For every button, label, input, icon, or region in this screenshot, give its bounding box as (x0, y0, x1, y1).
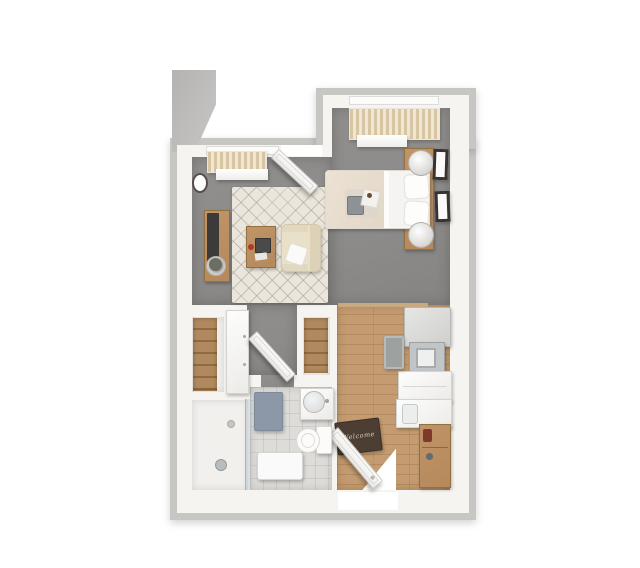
tray-snack (367, 193, 372, 198)
kitchen-mat (384, 336, 404, 369)
framed-art-bottom (434, 191, 450, 223)
console-shelf-line (422, 447, 448, 448)
shower-bench (257, 452, 303, 480)
plant-foliage (209, 258, 222, 271)
wardrobe-cabinet (226, 310, 249, 394)
toilet-bowl (296, 428, 320, 453)
laptop (255, 238, 271, 253)
entry-console-table (419, 424, 451, 488)
loveseat-arm-top (282, 225, 308, 232)
loveseat (281, 224, 321, 272)
patio-door-opening (281, 145, 322, 156)
table-lamp-south (408, 222, 434, 248)
wardrobe-handle-bottom (243, 363, 246, 366)
floorplan-3d-render: Welcome (0, 0, 640, 568)
bed-pillow-top (403, 173, 430, 200)
breakfast-tray (345, 189, 379, 218)
entry-door-opening (338, 492, 398, 510)
vanity-mirror (303, 391, 325, 413)
bathroom-vanity (300, 388, 334, 420)
vanity-faucet (325, 399, 329, 403)
tray-magazine (360, 188, 380, 208)
shower-drain (227, 420, 235, 428)
refrigerator (404, 307, 451, 347)
table-lamp-north (408, 150, 434, 176)
red-mug (248, 244, 254, 250)
kitchen-cabinet-upper (398, 371, 452, 402)
bath-mat (254, 392, 283, 431)
cabinet-drawer-line (403, 386, 447, 387)
shower-head (215, 459, 227, 471)
console-decor-vase (423, 429, 432, 442)
bedroom-window-valance (357, 135, 407, 147)
notebook (255, 252, 268, 261)
floor-shower (192, 400, 248, 490)
loveseat-arm-bottom (282, 264, 308, 271)
bed-sheet-fold (384, 171, 389, 228)
closet-left-shelves (193, 318, 217, 391)
shower-glass-partition (245, 399, 252, 490)
entry-door-knob (370, 475, 376, 481)
loveseat-back (310, 225, 320, 271)
throw-pillow (285, 243, 309, 267)
framed-art-top (432, 149, 448, 181)
wardrobe-handle-top (243, 335, 246, 338)
bedroom-window-glass (349, 96, 439, 105)
coffee-table (246, 226, 276, 268)
sink-basin (402, 404, 418, 424)
wall-clock (192, 173, 208, 193)
closet-linen-shelves (304, 318, 328, 373)
console-decor-bowl (426, 453, 433, 460)
living-window-valance (216, 169, 268, 180)
microwave-window (416, 348, 436, 368)
